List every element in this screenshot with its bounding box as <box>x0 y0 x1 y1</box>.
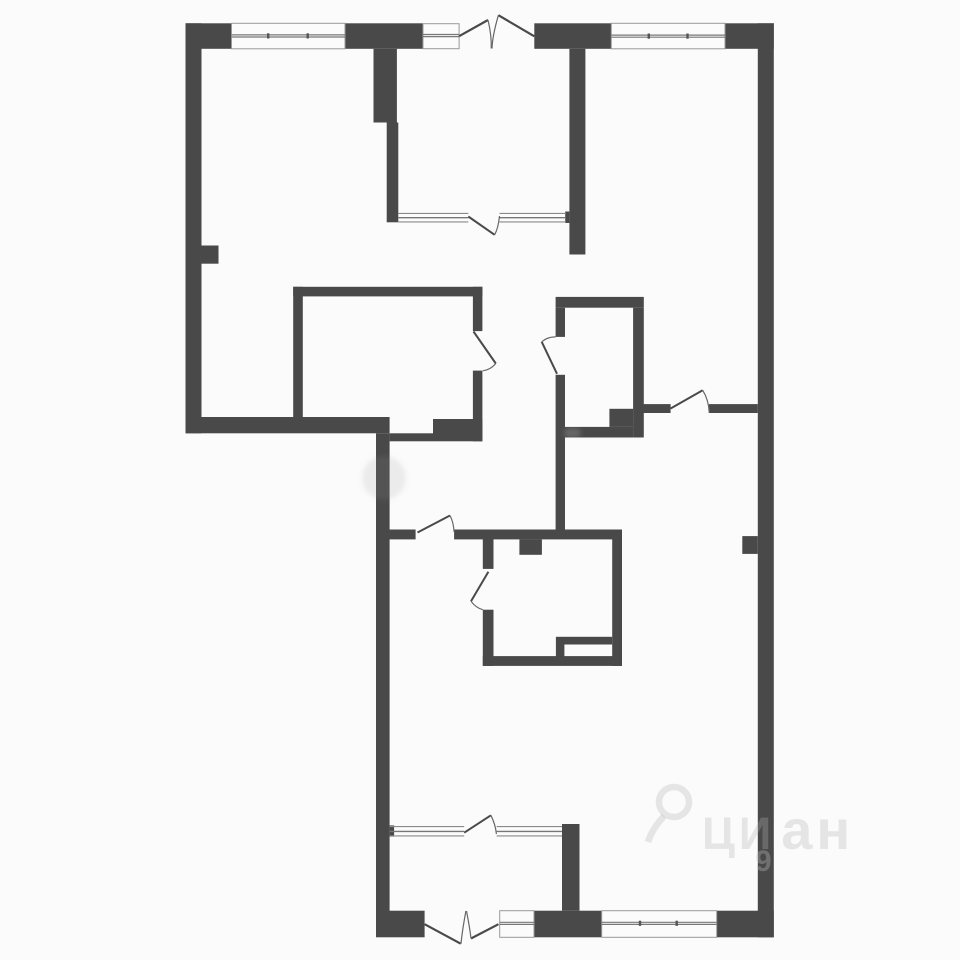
svg-text:9: 9 <box>755 845 772 878</box>
